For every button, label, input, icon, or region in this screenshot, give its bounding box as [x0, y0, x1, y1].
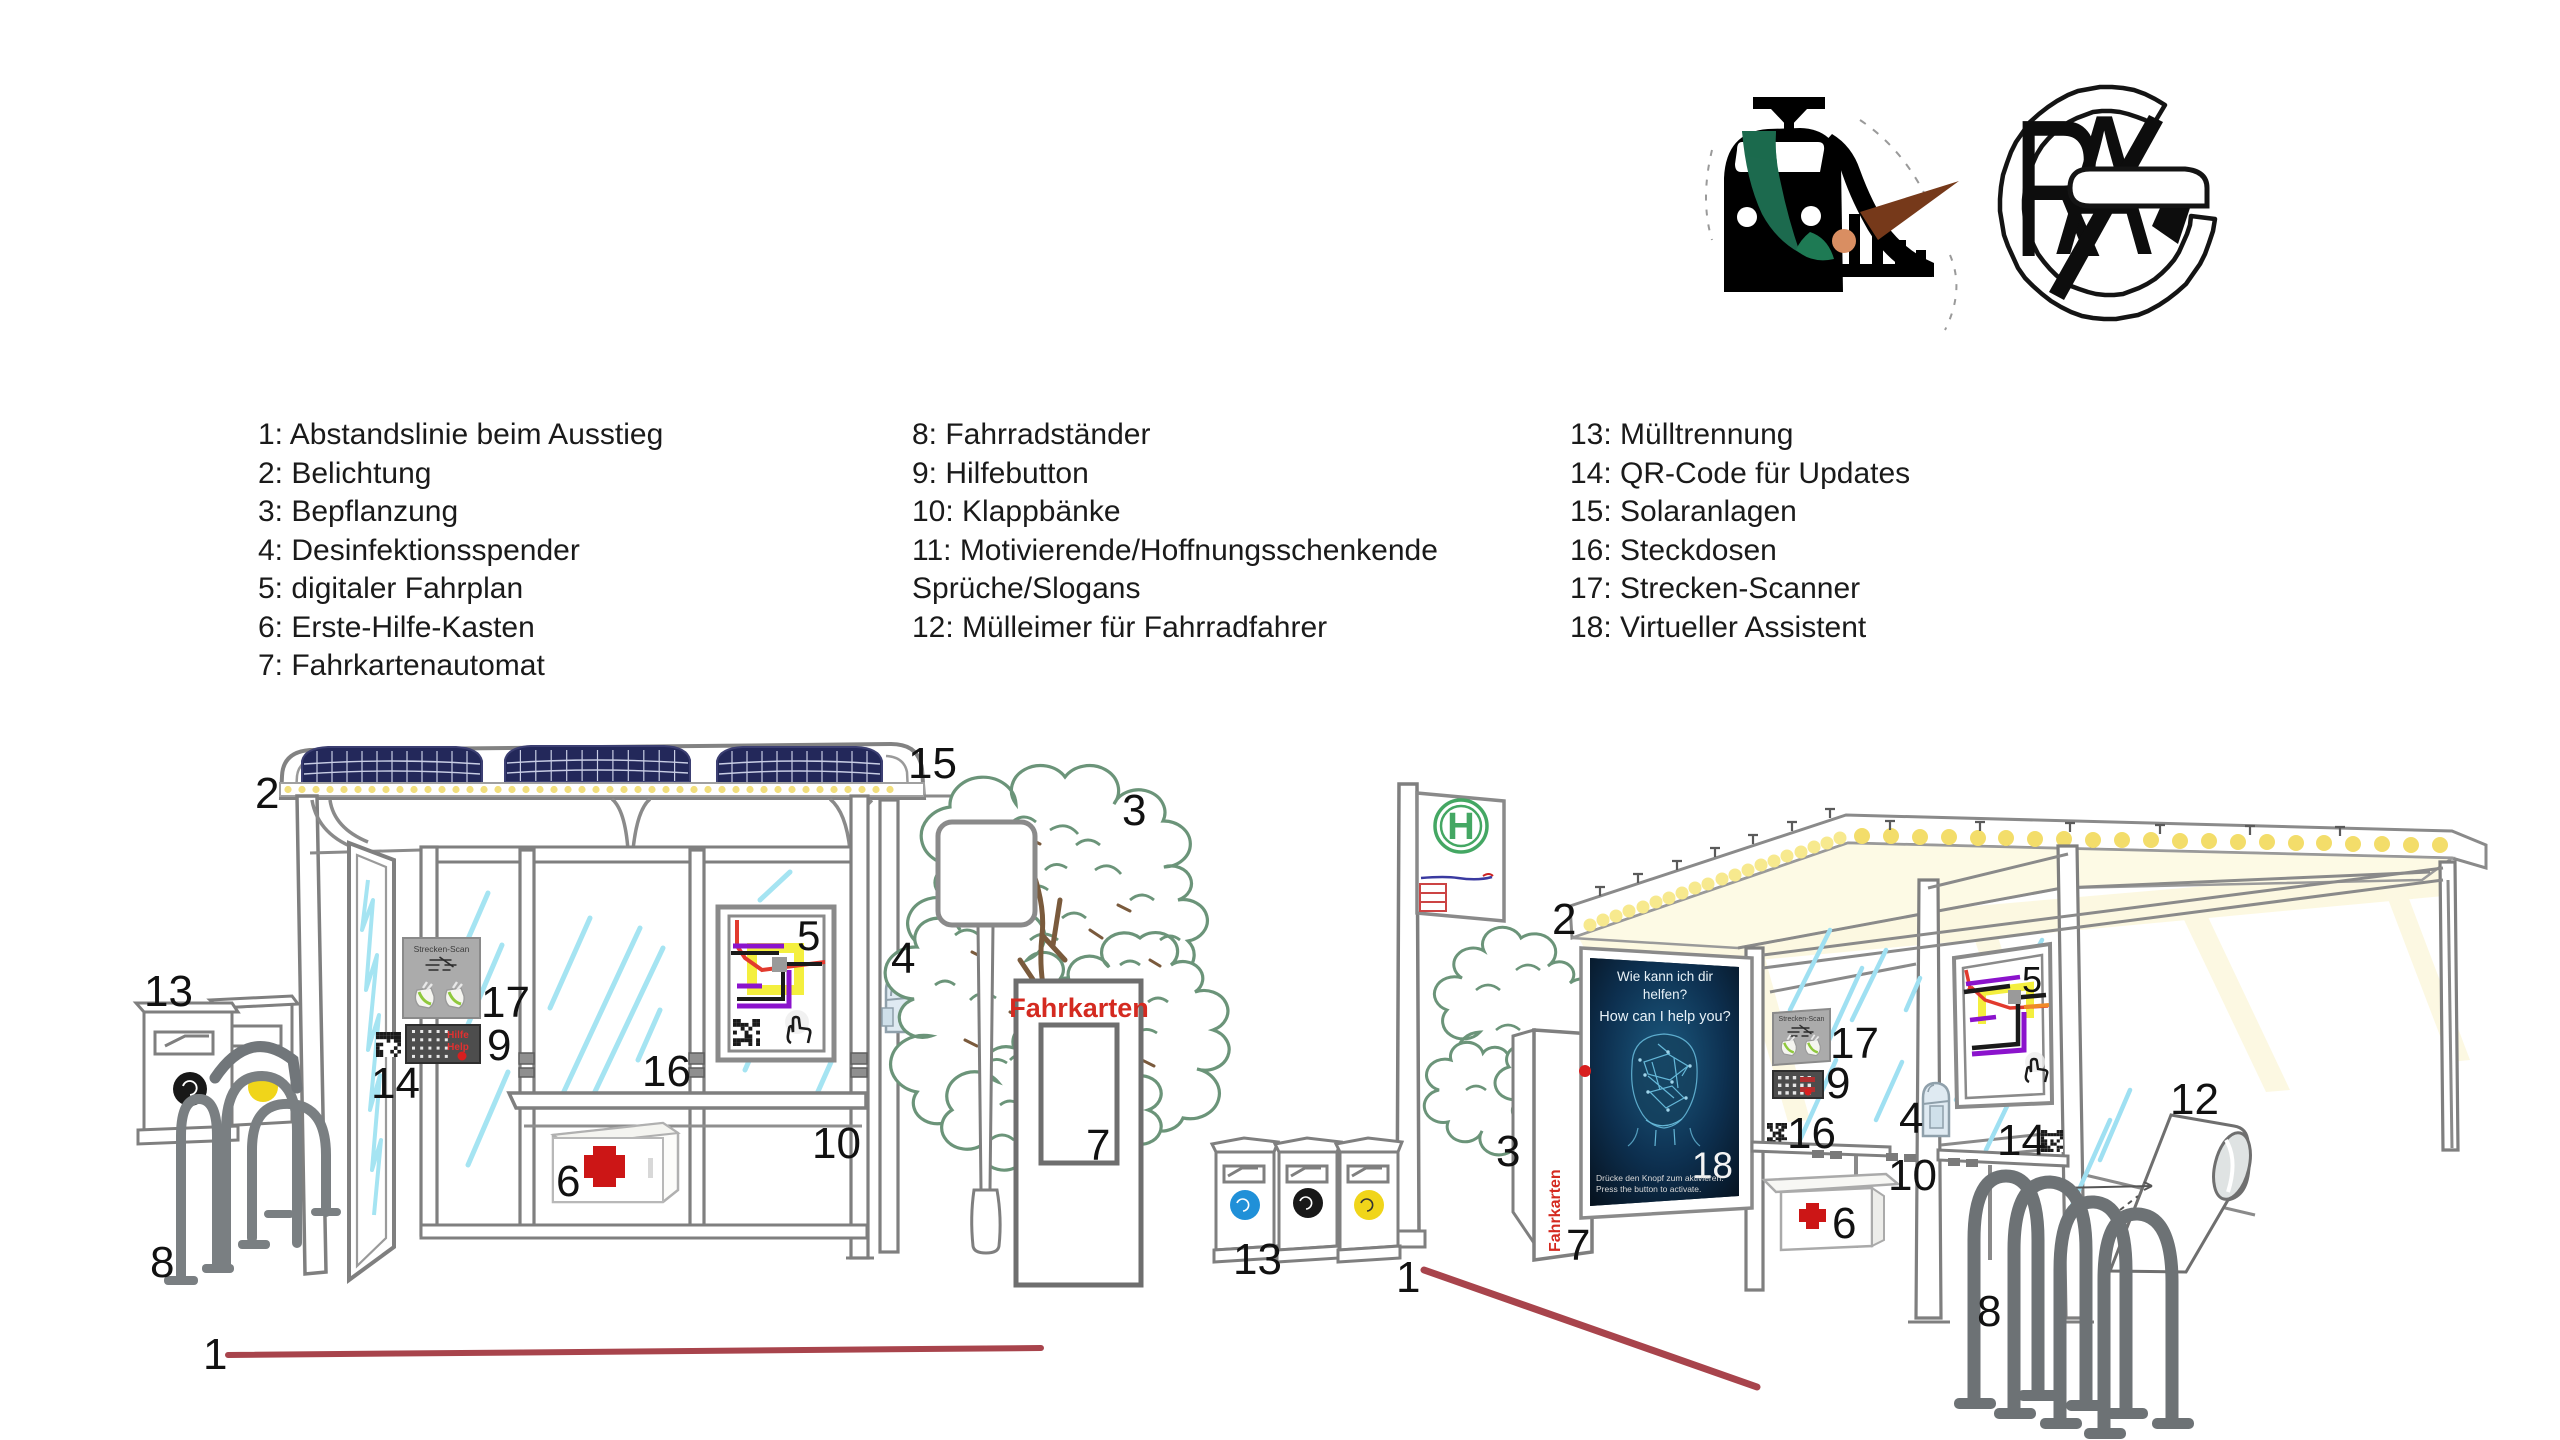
svg-text:6: 6 — [556, 1157, 580, 1206]
svg-text:Strecken-Scan: Strecken-Scan — [1779, 1016, 1825, 1023]
svg-text:13: 13 — [144, 967, 193, 1016]
svg-text:Drücke den Knopf zum aktiviere: Drücke den Knopf zum aktivieren. — [1596, 1173, 1724, 1183]
svg-text:5: digitaler Fahrplan: 5: digitaler Fahrplan — [258, 572, 523, 605]
svg-text:9: 9 — [1826, 1059, 1850, 1108]
svg-text:11: Motivierende/Hoffnungssche: 11: Motivierende/Hoffnungsschenkende — [912, 534, 1438, 567]
svg-text:10: Klappbänke: 10: Klappbänke — [912, 495, 1121, 528]
svg-text:17: 17 — [481, 978, 530, 1027]
svg-text:8: Fahrradständer: 8: Fahrradständer — [912, 418, 1150, 451]
svg-text:12: 12 — [2170, 1075, 2219, 1124]
svg-text:Press the button to activate.: Press the button to activate. — [1596, 1184, 1701, 1194]
svg-text:6: Erste-Hilfe-Kasten: 6: Erste-Hilfe-Kasten — [258, 611, 535, 644]
svg-text:17: Strecken-Scanner: 17: Strecken-Scanner — [1570, 572, 1860, 605]
svg-text:9: 9 — [487, 1021, 511, 1070]
svg-text:3: 3 — [1496, 1127, 1520, 1176]
svg-text:2: 2 — [1552, 895, 1576, 944]
svg-text:6: 6 — [1832, 1199, 1856, 1248]
svg-text:12: Mülleimer für Fahrradfahre: 12: Mülleimer für Fahrradfahrer — [912, 611, 1327, 644]
svg-text:9: Hilfebutton: 9: Hilfebutton — [912, 457, 1089, 490]
svg-text:4: 4 — [891, 934, 915, 983]
svg-text:3: Bepflanzung: 3: Bepflanzung — [258, 495, 458, 528]
svg-text:10: 10 — [812, 1119, 861, 1168]
svg-text:1: 1 — [203, 1330, 227, 1379]
svg-text:15: Solaranlagen: 15: Solaranlagen — [1570, 495, 1797, 528]
svg-text:13: Mülltrennung: 13: Mülltrennung — [1570, 418, 1793, 451]
svg-text:7: 7 — [1566, 1221, 1590, 1270]
svg-text:8: 8 — [150, 1238, 174, 1287]
svg-text:4: 4 — [1899, 1094, 1923, 1143]
svg-text:How can I help you?: How can I help you? — [1599, 1009, 1730, 1025]
svg-text:5: 5 — [797, 912, 820, 959]
svg-text:helfen?: helfen? — [1643, 987, 1687, 1002]
svg-text:8: 8 — [1977, 1287, 2001, 1336]
svg-text:H: H — [1447, 806, 1474, 848]
svg-text:5: 5 — [2022, 959, 2042, 1000]
svg-text:16: 16 — [1787, 1109, 1836, 1158]
svg-text:Fahrkarten: Fahrkarten — [1009, 993, 1149, 1023]
svg-text:1: 1 — [1396, 1253, 1420, 1302]
svg-text:7: Fahrkartenautomat: 7: Fahrkartenautomat — [258, 649, 545, 682]
svg-text:10: 10 — [1888, 1151, 1937, 1200]
svg-text:Fahrkarten: Fahrkarten — [1547, 1169, 1564, 1252]
svg-text:Wie kann ich dir: Wie kann ich dir — [1617, 969, 1714, 984]
svg-text:Help: Help — [447, 1042, 469, 1053]
svg-text:16: 16 — [642, 1047, 691, 1096]
svg-text:4: Desinfektionsspender: 4: Desinfektionsspender — [258, 534, 580, 567]
svg-text:14: QR-Code für Updates: 14: QR-Code für Updates — [1570, 457, 1910, 490]
svg-text:18: Virtueller Assistent: 18: Virtueller Assistent — [1570, 611, 1867, 644]
svg-text:7: 7 — [1086, 1121, 1110, 1170]
svg-text:2: Belichtung: 2: Belichtung — [258, 457, 431, 490]
svg-text:15: 15 — [908, 739, 957, 788]
svg-text:13: 13 — [1233, 1235, 1282, 1284]
svg-text:14: 14 — [1997, 1116, 2046, 1165]
svg-text:2: 2 — [255, 769, 279, 818]
svg-text:Sprüche/Slogans: Sprüche/Slogans — [912, 572, 1141, 605]
svg-text:Strecken-Scan: Strecken-Scan — [414, 944, 470, 954]
svg-text:16: Steckdosen: 16: Steckdosen — [1570, 534, 1777, 567]
svg-text:Hilfe: Hilfe — [447, 1030, 469, 1041]
svg-text:3: 3 — [1122, 786, 1146, 835]
svg-text:14: 14 — [371, 1059, 420, 1108]
svg-text:1: Abstandslinie beim Ausstieg: 1: Abstandslinie beim Ausstieg — [258, 418, 663, 451]
